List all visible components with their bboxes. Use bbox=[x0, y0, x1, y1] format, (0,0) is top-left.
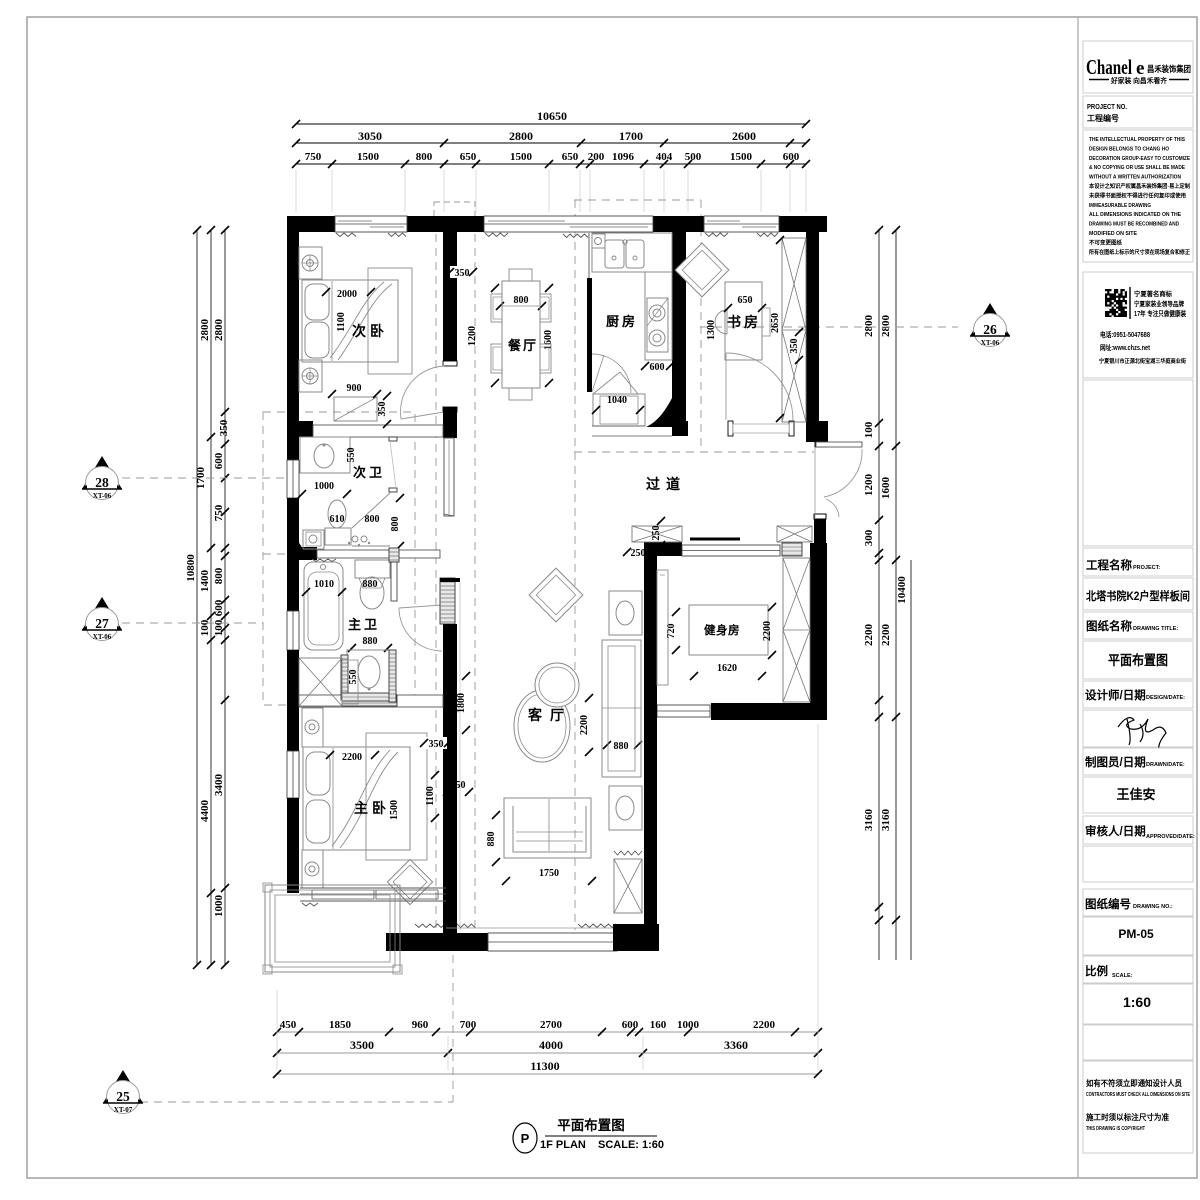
svg-text:4000: 4000 bbox=[539, 1038, 563, 1052]
svg-text:10800: 10800 bbox=[185, 554, 197, 582]
svg-text:DRAWN/DATE:: DRAWN/DATE: bbox=[1146, 762, 1185, 768]
svg-text:客厅: 客厅 bbox=[527, 707, 572, 723]
svg-text:DESIGN/DATE:: DESIGN/DATE: bbox=[1146, 695, 1185, 701]
svg-text:2800: 2800 bbox=[199, 319, 211, 342]
svg-text:1100: 1100 bbox=[425, 786, 436, 805]
svg-text:2700: 2700 bbox=[540, 1019, 563, 1031]
svg-text:设计师/日期: 设计师/日期 bbox=[1085, 688, 1146, 702]
svg-text:THE INTELLECTUAL PROPERTY OF T: THE INTELLECTUAL PROPERTY OF THIS bbox=[1089, 137, 1185, 143]
svg-text:450: 450 bbox=[451, 780, 466, 791]
svg-text:100: 100 bbox=[199, 619, 211, 636]
svg-text:1010: 1010 bbox=[314, 579, 334, 590]
svg-text:PROJECT NO.: PROJECT NO. bbox=[1087, 104, 1127, 111]
svg-text:3160: 3160 bbox=[863, 809, 875, 832]
svg-text:750: 750 bbox=[305, 151, 322, 163]
svg-text:Chanel: Chanel bbox=[1086, 55, 1132, 79]
svg-text:次卧: 次卧 bbox=[352, 323, 388, 339]
svg-text:如有不符须立即通知设计人员: 如有不符须立即通知设计人员 bbox=[1086, 1078, 1182, 1088]
svg-text:700: 700 bbox=[460, 1019, 477, 1031]
svg-text:宁夏著名商标: 宁夏著名商标 bbox=[1134, 289, 1172, 298]
svg-text:SCALE: 1:60: SCALE: 1:60 bbox=[598, 1139, 664, 1151]
svg-text:1500: 1500 bbox=[730, 151, 753, 163]
svg-text:150: 150 bbox=[448, 826, 459, 841]
svg-text:880: 880 bbox=[363, 579, 378, 590]
svg-text:2800: 2800 bbox=[863, 315, 875, 338]
svg-text:25: 25 bbox=[116, 1089, 130, 1104]
svg-text:工程名称: 工程名称 bbox=[1086, 558, 1132, 572]
svg-text:2200: 2200 bbox=[342, 752, 362, 763]
svg-text:图纸名称: 图纸名称 bbox=[1086, 619, 1132, 633]
svg-text:1400: 1400 bbox=[199, 570, 211, 593]
svg-text:11300: 11300 bbox=[530, 1059, 559, 1073]
svg-text:100: 100 bbox=[213, 619, 225, 636]
svg-text:26: 26 bbox=[983, 322, 997, 337]
svg-text:28: 28 bbox=[95, 475, 109, 490]
svg-text:过道: 过道 bbox=[646, 476, 686, 492]
svg-text:1800: 1800 bbox=[456, 693, 467, 713]
svg-text:600: 600 bbox=[213, 452, 225, 469]
svg-text:PM-05: PM-05 bbox=[1118, 927, 1154, 941]
svg-text:审核人/日期: 审核人/日期 bbox=[1085, 824, 1146, 838]
svg-text:MODIFIED ON SITE: MODIFIED ON SITE bbox=[1089, 231, 1137, 237]
svg-text:王佳安: 王佳安 bbox=[1116, 787, 1155, 802]
svg-text:800: 800 bbox=[514, 295, 529, 306]
svg-text:4400: 4400 bbox=[199, 800, 211, 823]
svg-text:XT-07: XT-07 bbox=[114, 1106, 133, 1114]
svg-text:880: 880 bbox=[614, 741, 629, 752]
svg-text:17年 专注只做健康装: 17年 专注只做健康装 bbox=[1134, 309, 1186, 318]
svg-text:650: 650 bbox=[738, 295, 753, 306]
svg-text:1500: 1500 bbox=[389, 800, 400, 820]
svg-text:800: 800 bbox=[416, 151, 433, 163]
svg-text:次卫: 次卫 bbox=[353, 465, 385, 480]
svg-text:制图员/日期: 制图员/日期 bbox=[1085, 755, 1146, 769]
svg-text:200: 200 bbox=[588, 151, 605, 163]
svg-text:500: 500 bbox=[685, 151, 702, 163]
svg-text:XT-06: XT-06 bbox=[93, 492, 112, 500]
svg-text:650: 650 bbox=[562, 151, 579, 163]
svg-text:2200: 2200 bbox=[880, 624, 892, 647]
svg-text:350: 350 bbox=[789, 339, 800, 354]
svg-text:3400: 3400 bbox=[213, 774, 225, 797]
svg-text:好家装 向昌禾看齐: 好家装 向昌禾看齐 bbox=[1110, 76, 1168, 85]
svg-text:主卧: 主卧 bbox=[354, 800, 390, 816]
svg-text:650: 650 bbox=[460, 151, 477, 163]
svg-text:900: 900 bbox=[347, 383, 362, 394]
svg-text:1000: 1000 bbox=[677, 1019, 700, 1031]
svg-text:健身房: 健身房 bbox=[704, 623, 740, 637]
svg-text:2200: 2200 bbox=[762, 621, 773, 641]
svg-text:DECORATION GROUP-EASY TO CUSTO: DECORATION GROUP-EASY TO CUSTOMIZE bbox=[1089, 156, 1190, 162]
svg-text:平面布置图: 平面布置图 bbox=[1108, 652, 1168, 668]
svg-text:本设计之知识产权属昌禾装饰集团·易上定制: 本设计之知识产权属昌禾装饰集团·易上定制 bbox=[1089, 182, 1190, 190]
svg-text:600: 600 bbox=[622, 1019, 639, 1031]
svg-text:1500: 1500 bbox=[357, 151, 380, 163]
svg-text:2800: 2800 bbox=[509, 129, 533, 143]
svg-text:电话:0951-5047688: 电话:0951-5047688 bbox=[1100, 330, 1150, 339]
svg-text:2200: 2200 bbox=[753, 1019, 776, 1031]
svg-text:960: 960 bbox=[412, 1019, 429, 1031]
svg-text:DRAWING MUST BE RECOMBINED AND: DRAWING MUST BE RECOMBINED AND bbox=[1089, 222, 1179, 228]
svg-text:P: P bbox=[521, 1131, 530, 1146]
svg-text:不可变更图纸: 不可变更图纸 bbox=[1089, 238, 1122, 246]
svg-text:2600: 2600 bbox=[732, 129, 756, 143]
svg-text:1000: 1000 bbox=[213, 895, 225, 918]
svg-text:350: 350 bbox=[218, 419, 230, 436]
svg-text:3500: 3500 bbox=[350, 1038, 374, 1052]
svg-text:SCALE:: SCALE: bbox=[1112, 973, 1133, 979]
svg-text:2800: 2800 bbox=[880, 315, 892, 338]
svg-text:宁夏家装业领导品牌: 宁夏家装业领导品牌 bbox=[1134, 299, 1184, 308]
svg-text:350: 350 bbox=[377, 402, 388, 417]
svg-text:DESIGN BELONGS TO CHANG HO: DESIGN BELONGS TO CHANG HO bbox=[1089, 146, 1169, 152]
svg-text:书房: 书房 bbox=[727, 314, 761, 330]
svg-text:APPROVED/DATE:: APPROVED/DATE: bbox=[1146, 834, 1195, 840]
svg-text:3360: 3360 bbox=[724, 1038, 748, 1052]
svg-text:1000: 1000 bbox=[314, 481, 334, 492]
svg-text:图纸编号: 图纸编号 bbox=[1085, 897, 1131, 911]
svg-text:比例: 比例 bbox=[1085, 964, 1108, 978]
svg-text:800: 800 bbox=[365, 514, 380, 525]
svg-text:主卫: 主卫 bbox=[348, 617, 380, 632]
svg-text:1040: 1040 bbox=[607, 395, 627, 406]
svg-text:1096: 1096 bbox=[612, 151, 635, 163]
svg-text:工程编号: 工程编号 bbox=[1087, 113, 1119, 123]
svg-text:ALL DIMENSIONS INDICATED ON T: ALL DIMENSIONS INDICATED ON THE bbox=[1089, 212, 1181, 218]
svg-text:880: 880 bbox=[363, 636, 378, 647]
svg-text:北塔书院K2户型样板间: 北塔书院K2户型样板间 bbox=[1086, 589, 1190, 603]
svg-text:2650: 2650 bbox=[770, 313, 781, 333]
svg-text:所有在图纸上标示的尺寸须在现场复合和修正: 所有在图纸上标示的尺寸须在现场复合和修正 bbox=[1089, 248, 1190, 256]
svg-text:IMMEASURABLE DRAWING: IMMEASURABLE DRAWING bbox=[1089, 203, 1151, 209]
svg-text:1620: 1620 bbox=[717, 663, 737, 674]
svg-text:600: 600 bbox=[783, 151, 800, 163]
svg-text:250: 250 bbox=[631, 548, 646, 559]
svg-text:1300: 1300 bbox=[706, 320, 717, 340]
svg-text:3160: 3160 bbox=[880, 809, 892, 832]
svg-text:WITHOUT A WRITTEN AUTHORIZATIO: WITHOUT A WRITTEN AUTHORIZATION bbox=[1089, 175, 1181, 181]
svg-text:2000: 2000 bbox=[337, 289, 357, 300]
svg-text:平面布置图: 平面布置图 bbox=[557, 1117, 625, 1133]
svg-text:350: 350 bbox=[429, 739, 444, 750]
svg-text:350: 350 bbox=[455, 268, 470, 279]
svg-text:1850: 1850 bbox=[329, 1019, 352, 1031]
svg-text:1100: 1100 bbox=[336, 312, 347, 331]
svg-text:& NO COPYING OR USE SHALL BE M: & NO COPYING OR USE SHALL BE MADE bbox=[1089, 165, 1185, 171]
svg-text:THIS DRAWING IS COPYRIGHT: THIS DRAWING IS COPYRIGHT bbox=[1086, 1126, 1145, 1132]
svg-text:2200: 2200 bbox=[579, 715, 590, 735]
svg-text:300: 300 bbox=[863, 529, 875, 546]
svg-text:昌禾装饰集团: 昌禾装饰集团 bbox=[1147, 64, 1191, 74]
svg-text:27: 27 bbox=[95, 616, 109, 631]
svg-text:1:60: 1:60 bbox=[1123, 994, 1151, 1010]
svg-text:餐厅: 餐厅 bbox=[507, 338, 538, 353]
svg-text:厨房: 厨房 bbox=[606, 314, 638, 329]
svg-text:1700: 1700 bbox=[619, 129, 643, 143]
svg-text:1600: 1600 bbox=[880, 477, 892, 500]
svg-text:1750: 1750 bbox=[539, 868, 559, 879]
svg-text:1F PLAN: 1F PLAN bbox=[540, 1139, 586, 1151]
svg-text:施工时须以标注尺寸为准: 施工时须以标注尺寸为准 bbox=[1086, 1112, 1169, 1122]
svg-text:250: 250 bbox=[651, 526, 662, 541]
svg-text:880: 880 bbox=[486, 832, 497, 847]
svg-text:2800: 2800 bbox=[213, 319, 225, 342]
svg-text:DRAWING NO.:: DRAWING NO.: bbox=[1133, 904, 1173, 910]
svg-text:1500: 1500 bbox=[510, 151, 533, 163]
svg-text:未获得书面授权不得进行任何复印或使用: 未获得书面授权不得进行任何复印或使用 bbox=[1089, 191, 1186, 199]
svg-text:1200: 1200 bbox=[863, 474, 875, 497]
svg-text:10400: 10400 bbox=[896, 576, 908, 604]
svg-text:100: 100 bbox=[863, 421, 875, 438]
svg-text:宁夏银川市正源北街宝湖三华庭商业街: 宁夏银川市正源北街宝湖三华庭商业街 bbox=[1099, 357, 1186, 365]
svg-text:450: 450 bbox=[280, 1019, 297, 1031]
svg-text:610: 610 bbox=[330, 514, 345, 525]
svg-text:600: 600 bbox=[650, 362, 665, 373]
svg-text:750: 750 bbox=[213, 504, 225, 521]
svg-text:XT-06: XT-06 bbox=[981, 339, 1000, 347]
svg-text:CONTRACTORS MUST CHECK ALL DIM: CONTRACTORS MUST CHECK ALL DIMENSIONS ON… bbox=[1086, 1092, 1190, 1098]
svg-text:10650: 10650 bbox=[537, 109, 567, 123]
svg-text:550: 550 bbox=[348, 670, 359, 685]
svg-text:e: e bbox=[1136, 58, 1144, 79]
svg-text:550: 550 bbox=[346, 448, 357, 463]
svg-text:PROJECT:: PROJECT: bbox=[1133, 565, 1160, 571]
svg-text:1200: 1200 bbox=[467, 326, 478, 346]
svg-text:3050: 3050 bbox=[358, 129, 382, 143]
svg-text:160: 160 bbox=[650, 1019, 667, 1031]
svg-text:404: 404 bbox=[656, 151, 673, 163]
svg-text:XT-06: XT-06 bbox=[93, 633, 112, 641]
svg-text:DRAWING TITLE:: DRAWING TITLE: bbox=[1133, 626, 1178, 632]
svg-text:网址:www.chzs.net: 网址:www.chzs.net bbox=[1100, 343, 1151, 352]
svg-text:800: 800 bbox=[213, 567, 225, 584]
svg-text:600: 600 bbox=[213, 599, 225, 616]
svg-text:800: 800 bbox=[390, 517, 401, 532]
svg-text:2200: 2200 bbox=[863, 624, 875, 647]
